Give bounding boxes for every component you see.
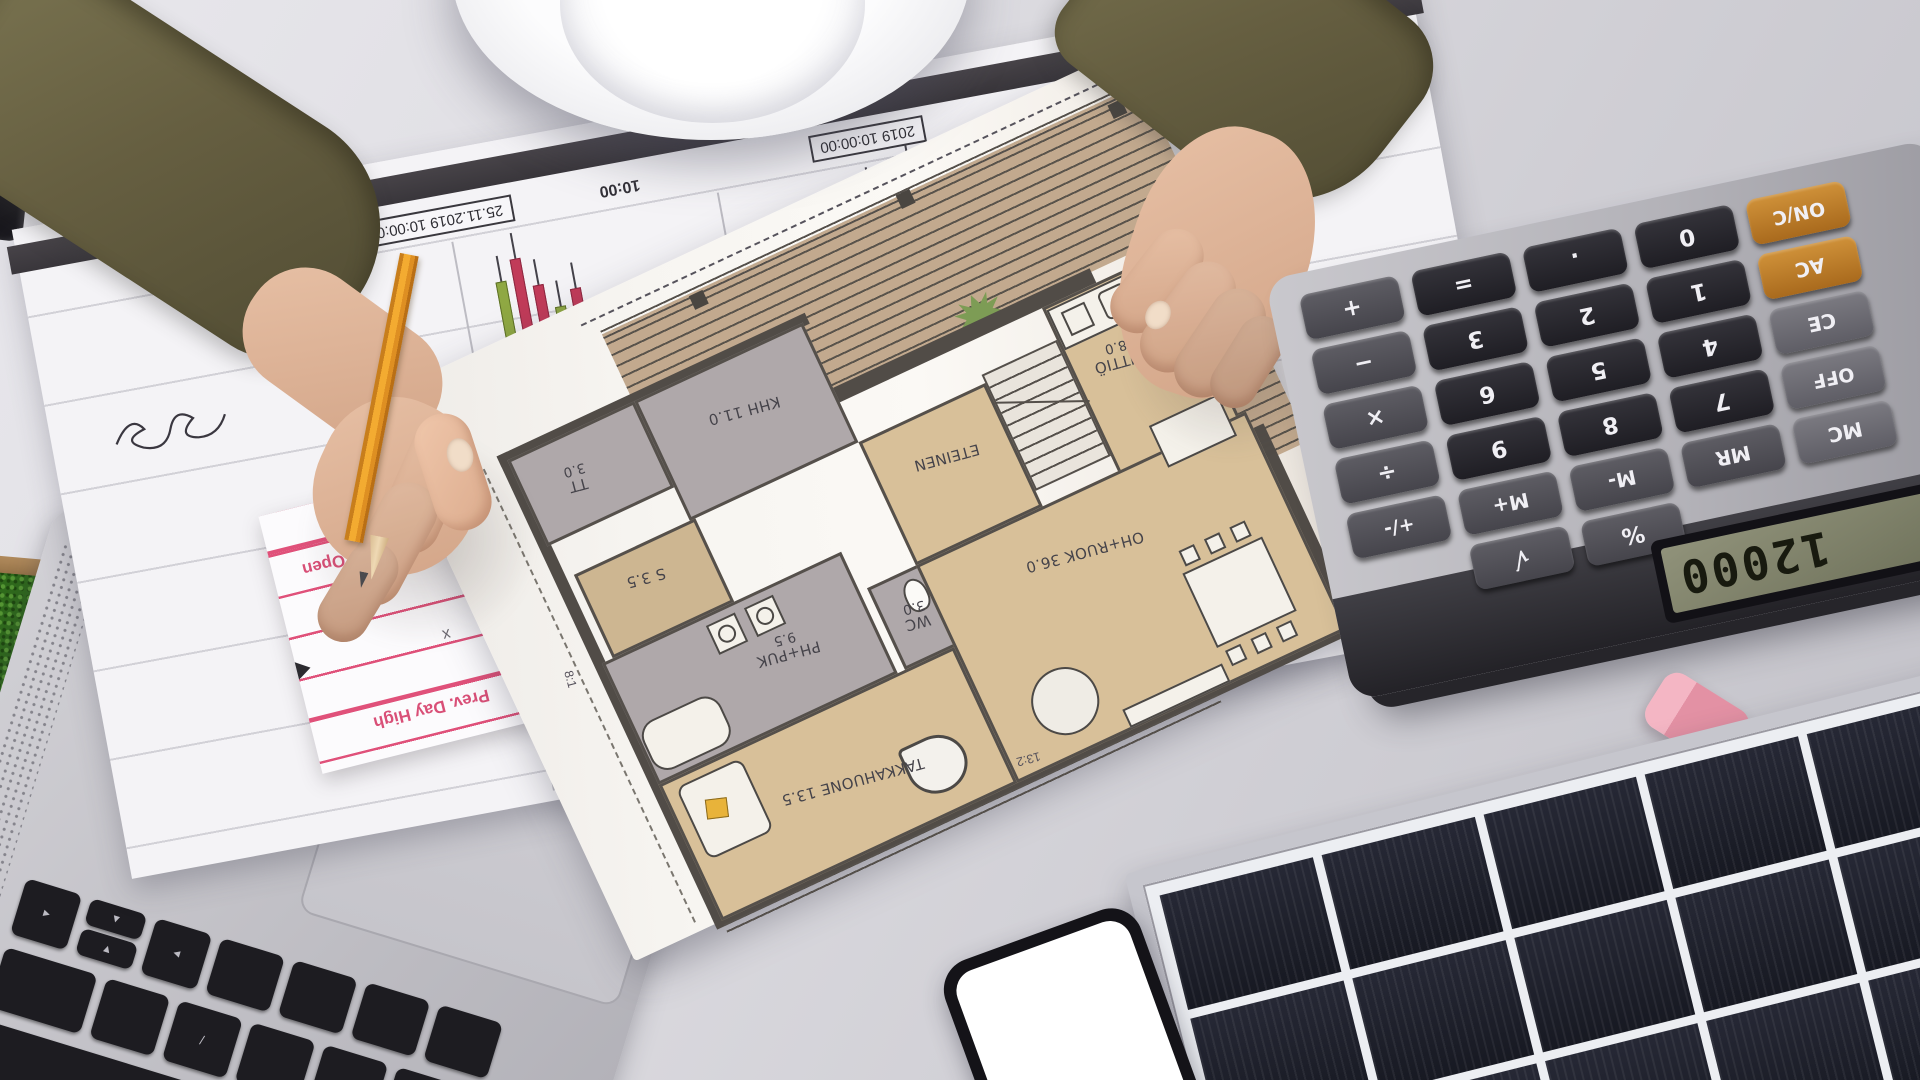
slash-key: / — [162, 1000, 243, 1079]
calc-key-6: 6 — [1433, 361, 1540, 427]
calc-key-off: OFF — [1780, 344, 1887, 410]
keyboard-key — [423, 1004, 503, 1079]
arrow-down-icon: ▾ — [101, 940, 112, 957]
calc-key-1: 1 — [1645, 259, 1752, 325]
calc-key-4: 4 — [1656, 313, 1763, 379]
keyboard-key — [0, 947, 98, 1034]
calc-key-mr: MR — [1680, 423, 1787, 489]
solar-cells — [1160, 656, 1920, 1080]
keyboard-key — [278, 960, 358, 1035]
armchair-cushion — [705, 797, 729, 820]
keyboard-key — [89, 978, 170, 1057]
calc-key-mplus: M+ — [1457, 470, 1564, 536]
calc-key-signchange: +/- — [1345, 494, 1452, 560]
hard-hat-dome — [560, 0, 865, 123]
calc-key-ce: CE — [1768, 290, 1875, 356]
calc-key-0: 0 — [1633, 204, 1740, 270]
calc-key-minus: − — [1310, 330, 1417, 396]
calc-key-2: 2 — [1533, 282, 1640, 348]
calc-key-multiply: × — [1322, 384, 1429, 450]
arrow-left-icon: ◂ — [41, 906, 52, 923]
keyboard-key — [380, 1067, 461, 1080]
calc-key-9: 9 — [1445, 416, 1552, 482]
calc-key-3: 3 — [1422, 306, 1529, 372]
solar-panel — [1124, 620, 1920, 1080]
calc-key-plus: + — [1299, 275, 1406, 341]
arrow-right-icon: ▸ — [171, 945, 182, 962]
arrow-right-key: ▸ — [140, 918, 212, 990]
calc-key-decimal: . — [1522, 227, 1629, 293]
calc-key-divide: ÷ — [1334, 439, 1441, 505]
calc-key-8: 8 — [1557, 392, 1664, 458]
solar-cell — [1807, 696, 1920, 849]
keyboard-key — [205, 938, 285, 1013]
calc-key-mc: MC — [1791, 399, 1898, 465]
keyboard-key — [307, 1045, 388, 1080]
desk-scene: ◂ ▴ ▾ ▸ / 25.11.2019 10:00:00 10:00 2019… — [0, 0, 1920, 1080]
calc-key-mminus: M- — [1568, 447, 1675, 513]
calc-key-ac: AC — [1756, 235, 1863, 301]
slash-glyph: / — [198, 1032, 206, 1047]
keyboard-key — [350, 982, 430, 1057]
calc-key-7: 7 — [1668, 368, 1775, 434]
keyboard-key — [234, 1022, 315, 1080]
arrow-up-icon: ▴ — [110, 911, 121, 928]
calc-key-equals: = — [1410, 251, 1517, 317]
notebook-row-prevhigh: Prev. Day High — [371, 684, 491, 732]
triangle-marker-icon — [295, 659, 313, 680]
calc-key-5: 5 — [1545, 337, 1652, 403]
calc-key-onc: ON/C — [1745, 180, 1852, 246]
arrow-left-key: ◂ — [10, 878, 82, 950]
